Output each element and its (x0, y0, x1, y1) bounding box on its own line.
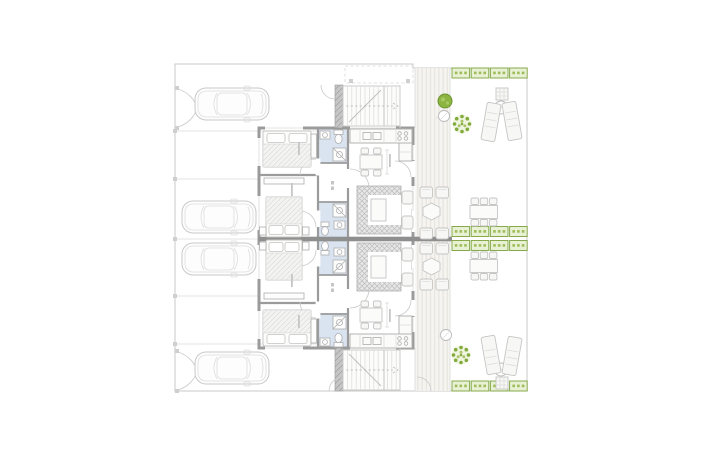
stair-wall-bottom (335, 348, 343, 391)
dresser (311, 134, 317, 158)
planter-row-top (452, 68, 527, 78)
car-2 (182, 199, 256, 235)
sideboard (264, 293, 304, 299)
fence-post (173, 342, 177, 346)
sideboard (264, 178, 304, 184)
room-label-mark (291, 183, 293, 196)
car-3 (182, 241, 256, 277)
tree-small (438, 94, 452, 108)
bed-unit1-bedroom1 (263, 131, 311, 167)
driveway-gate-bottom (175, 349, 197, 393)
nightstand (303, 242, 310, 250)
planter-row-middle-lower (452, 241, 527, 251)
lounger-set-unit1 (481, 88, 522, 142)
tree-large-unit2 (452, 346, 471, 365)
car-4 (195, 350, 269, 386)
fence-post (173, 237, 177, 241)
dimension-line (385, 303, 391, 327)
room-label-mark (291, 274, 293, 287)
nightstand (260, 242, 267, 250)
stairs-top (343, 86, 400, 126)
sofa-set-unit2 (357, 243, 413, 291)
planter-row-bottom (452, 381, 527, 391)
hall-label-mark (331, 289, 334, 293)
bed-unit2-bedroom1 (263, 310, 311, 346)
sofa-set-unit1 (357, 186, 413, 234)
hall-label-mark (331, 181, 334, 185)
dining-table-unit2 (360, 301, 382, 329)
tree-large-unit1 (453, 115, 472, 134)
stairs-bottom (343, 350, 400, 390)
fence-post (173, 177, 177, 181)
room-label-mark (298, 142, 300, 155)
nightstand (303, 227, 310, 235)
stair-canopy (345, 66, 413, 83)
garden-dining-table-unit1 (470, 198, 498, 226)
dresser (311, 319, 317, 343)
fence-post (173, 294, 177, 298)
nightstand (260, 227, 267, 235)
garden-dining-table-unit2 (470, 252, 498, 280)
stair-wall-top (335, 85, 343, 128)
hall-label-mark (331, 283, 334, 287)
car-1 (195, 86, 269, 122)
hall-label-mark (331, 187, 334, 191)
floor-plan-canvas (0, 0, 726, 470)
dining-table-unit1 (360, 148, 382, 176)
dimension-line (385, 150, 391, 174)
bed-unit1-bedroom2 (266, 197, 302, 237)
planter-row-middle-upper (452, 227, 527, 237)
floor-plan-page (0, 0, 726, 470)
driveway-gate-top (175, 86, 197, 130)
bed-unit2-bedroom2 (266, 240, 302, 280)
room-label-mark (298, 315, 300, 328)
